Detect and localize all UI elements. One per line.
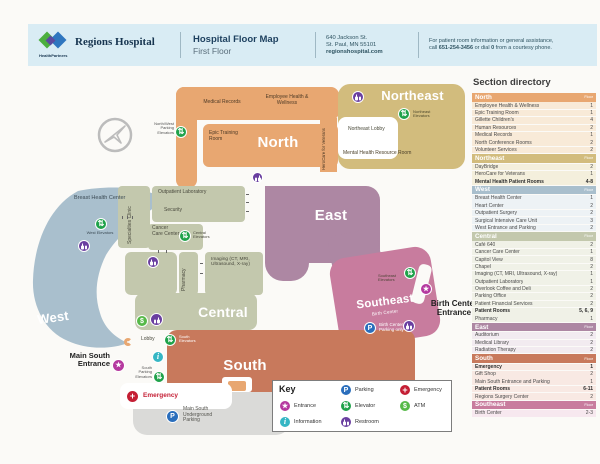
key-item-parking: PParking xyxy=(340,384,374,396)
directory-entry-name: Patient Rooms xyxy=(475,386,510,392)
elevator-icon: ⇅ xyxy=(153,371,165,383)
directory-entry-name: Epic Training Room xyxy=(475,110,519,116)
lobby-label: Lobby xyxy=(141,337,163,343)
nw-parking-elevators-label: North/West Parking Elevators xyxy=(146,122,174,135)
address-line: 640 Jackson St. xyxy=(326,35,418,42)
directory-section-header: NorthFloor xyxy=(472,93,596,102)
key-item-elevator: ⇅Elevator xyxy=(340,400,375,412)
directory-entry-name: Imaging (CT, MRI, Ultrasound, X-ray) xyxy=(475,271,557,277)
directory-row: Birth Center2-3 xyxy=(472,410,596,417)
directory-row: Patient Rooms6-11 xyxy=(472,386,596,393)
northeast-elevators-label: Northeast Elevators xyxy=(413,110,443,119)
directory-row: Gillette Children's4 xyxy=(472,117,596,124)
directory-entry-floor: 2 xyxy=(588,371,593,377)
elevator-icon: ⇅ xyxy=(404,267,416,279)
brand-logo: Regions Hospital HealthPartners xyxy=(28,24,180,66)
brand-name: Regions Hospital xyxy=(75,36,155,48)
central-region-label: Central xyxy=(188,304,258,320)
birth-center-entrance-label: Birth Center Entrance xyxy=(430,300,478,318)
directory-entry-name: Heart Center xyxy=(475,203,504,209)
directory-entry-floor: 2 xyxy=(588,347,593,353)
directory-row: Medical Library2 xyxy=(472,340,596,347)
door-tick xyxy=(246,202,249,203)
directory-entry-floor: 1 xyxy=(588,110,593,116)
directory-entry-name: Employee Health & Wellness xyxy=(475,103,539,109)
brand-subname: HealthPartners xyxy=(39,53,67,58)
elevator-icon: ⇅ xyxy=(164,334,176,346)
directory-row: Surgical Intensive Care Unit3 xyxy=(472,217,596,224)
directory-entry-floor: 2 xyxy=(588,340,593,346)
directory-entry-name: Volunteer Services xyxy=(475,147,517,153)
directory-entry-floor: 8 xyxy=(588,257,593,263)
directory-row: Patient Rooms5, 6, 9 xyxy=(472,308,596,315)
directory-section-name: North xyxy=(475,94,492,101)
directory-entry-floor: 1 xyxy=(588,279,593,285)
information-icon: i xyxy=(152,351,164,363)
directory-entry-floor: 4-8 xyxy=(584,179,593,185)
directory-entry-floor: 2 xyxy=(588,210,593,216)
directory-entry-floor: 1 xyxy=(588,316,593,322)
door-tick xyxy=(132,216,133,219)
directory-row: Pharmacy1 xyxy=(472,315,596,322)
directory-row: DayBridge2 xyxy=(472,164,596,171)
directory-section-name: Central xyxy=(475,233,497,240)
directory-floor-heading: Floor xyxy=(584,403,593,407)
directory-floor-heading: Floor xyxy=(584,95,593,99)
directory-row: Outpatient Laboratory1 xyxy=(472,278,596,285)
directory-row: Cancer Care Center1 xyxy=(472,249,596,256)
emergency-label: Emergency xyxy=(143,392,187,399)
parking-icon: P xyxy=(166,410,179,423)
directory-entry-name: Auditorium xyxy=(475,332,499,338)
directory-section-header: CentralFloor xyxy=(472,232,596,241)
restroom-icon xyxy=(150,313,163,326)
directory-entry-floor: 2-3 xyxy=(584,410,593,416)
directory-sections: NorthFloorEmployee Health & Wellness1Epi… xyxy=(472,93,596,417)
directory-section-header: WestFloor xyxy=(472,186,596,195)
directory-entry-floor: 1 xyxy=(588,249,593,255)
hospital-website: regionshospital.com xyxy=(326,49,418,56)
directory-entry-floor: 1 xyxy=(588,271,593,277)
directory-row: HeroCare for Veterans1 xyxy=(472,171,596,178)
key-item-restroom: Restroom xyxy=(340,416,379,428)
page-subtitle: First Floor xyxy=(193,46,315,56)
directory-entry-floor: 1 xyxy=(588,195,593,201)
directory-entry-floor: 2 xyxy=(588,140,593,146)
directory-entry-name: Birth Center xyxy=(475,410,502,416)
directory-entry-name: Outpatient Surgery xyxy=(475,210,517,216)
directory-entry-name: Patient Financial Services xyxy=(475,301,533,307)
outpatient-lab-label: Outpatient Laboratory xyxy=(158,190,214,196)
directory-entry-name: Emergency xyxy=(475,364,502,370)
south-parking-elevators-label: South Parking Elevators xyxy=(128,366,152,379)
restroom-icon xyxy=(403,320,415,332)
directory-entry-name: Human Resources xyxy=(475,125,516,131)
directory-entry-floor: 1 xyxy=(588,132,593,138)
directory-row: Capitol View8 xyxy=(472,256,596,263)
restroom-icon xyxy=(252,172,263,183)
door-tick xyxy=(127,216,128,219)
atm-icon: $ xyxy=(136,315,148,327)
directory-floor-heading: Floor xyxy=(584,357,593,361)
restroom-icon xyxy=(340,416,352,428)
directory-entry-name: Cancer Care Center xyxy=(475,249,520,255)
directory-row: Employee Health & Wellness1 xyxy=(472,102,596,109)
north-region-label: North xyxy=(243,134,313,151)
main-south-entrance-label: Main South Entrance xyxy=(46,352,110,369)
northeast-lobby-label: Northeast Lobby xyxy=(348,127,388,133)
key-item-emergency: +Emergency xyxy=(399,384,442,396)
restroom-icon xyxy=(78,240,90,252)
restroom-icon xyxy=(147,256,159,268)
directory-entry-floor: 1 xyxy=(588,379,593,385)
directory-entry-floor: 2 xyxy=(588,225,593,231)
pharmacy-label: Pharmacy xyxy=(182,257,188,291)
directory-entry-name: Radiation Therapy xyxy=(475,347,516,353)
directory-section-header: SoutheastFloor xyxy=(472,401,596,410)
directory-entry-name: Surgical Intensive Care Unit xyxy=(475,218,537,224)
header-bar: Regions Hospital HealthPartners Hospital… xyxy=(28,24,597,66)
emergency-icon: + xyxy=(126,390,139,403)
directory-row: Imaging (CT, MRI, Ultrasound, X-ray)1 xyxy=(472,271,596,278)
directory-entry-name: Gift Shop xyxy=(475,371,496,377)
door-tick xyxy=(166,250,167,253)
directory-entry-floor: 3 xyxy=(588,218,593,224)
directory-entry-floor: 1 xyxy=(588,103,593,109)
directory-entry-name: Breast Health Center xyxy=(475,195,522,201)
directory-row: Emergency1 xyxy=(472,364,596,371)
east-wing-shape xyxy=(265,186,309,281)
entrance-icon: ★ xyxy=(279,400,291,412)
header-title-block: Hospital Floor Map First Floor xyxy=(181,34,315,56)
elevator-icon: ⇅ xyxy=(398,108,410,120)
directory-row: Parking Office2 xyxy=(472,293,596,300)
directory-section-header: NortheastFloor xyxy=(472,154,596,163)
directory-section-name: Southeast xyxy=(475,401,505,408)
directory-row: Chapel2 xyxy=(472,264,596,271)
south-region-label: South xyxy=(205,357,285,374)
directory-row: Overlook Coffee and Deli2 xyxy=(472,286,596,293)
directory-section-name: Northeast xyxy=(475,155,504,162)
directory-entry-floor: 2 xyxy=(588,293,593,299)
breast-health-label: Breast Health Center xyxy=(74,195,126,201)
directory-entry-name: Main South Entrance and Parking xyxy=(475,379,550,385)
parking-icon: P xyxy=(364,322,376,334)
directory-entry-name: Pharmacy xyxy=(475,316,498,322)
directory-entry-floor: 5, 6, 9 xyxy=(577,308,593,314)
directory-row: Heart Center2 xyxy=(472,202,596,209)
restroom-icon xyxy=(352,91,364,103)
directory-section-name: East xyxy=(475,324,488,331)
door-tick xyxy=(158,250,159,253)
door-tick xyxy=(122,216,123,219)
door-tick xyxy=(200,273,203,274)
directory-entry-name: DayBridge xyxy=(475,164,498,170)
east-region-label: East xyxy=(300,207,362,224)
directory-entry-floor: 4 xyxy=(588,117,593,123)
hospital-floor-map-page: Regions Hospital HealthPartners Hospital… xyxy=(0,0,600,464)
directory-row: Main South Entrance and Parking1 xyxy=(472,378,596,385)
directory-row: Radiation Therapy2 xyxy=(472,347,596,354)
directory-row: Human Resources2 xyxy=(472,125,596,132)
directory-entry-name: Medical Records xyxy=(475,132,512,138)
main-south-parking-label: Main South Underground Parking xyxy=(183,407,229,424)
directory-entry-name: Café 640 xyxy=(475,242,495,248)
directory-row: Outpatient Surgery2 xyxy=(472,210,596,217)
directory-entry-floor: 2 xyxy=(588,164,593,170)
directory-floor-heading: Floor xyxy=(584,234,593,238)
southeast-elevators-label: Southeast Elevators xyxy=(378,274,404,283)
directory-entry-name: Gillette Children's xyxy=(475,117,514,123)
page-title: Hospital Floor Map xyxy=(193,34,315,45)
directory-row: Epic Training Room1 xyxy=(472,110,596,117)
directory-entry-name: Capitol View xyxy=(475,257,503,263)
assistance-line1: For patient room information or general … xyxy=(429,38,589,45)
key-title: Key xyxy=(279,384,296,394)
south-elevators-label: South Elevators xyxy=(179,335,203,344)
entrance-icon: ★ xyxy=(420,283,432,295)
directory-section-name: South xyxy=(475,355,493,362)
epic-training-label: Epic Training Room xyxy=(209,131,245,142)
entrance-icon: ★ xyxy=(112,359,125,372)
door-tick xyxy=(246,194,249,195)
directory-entry-name: Overlook Coffee and Deli xyxy=(475,286,531,292)
directory-entry-floor: 2 xyxy=(588,203,593,209)
directory-section-name: West xyxy=(475,186,490,193)
section-directory-title: Section directory xyxy=(473,77,551,88)
directory-entry-name: Patient Rooms xyxy=(475,308,510,314)
west-elevators-label: West Elevators xyxy=(86,231,114,235)
elevator-icon: ⇅ xyxy=(95,218,107,230)
directory-entry-name: Parking Office xyxy=(475,293,506,299)
directory-entry-floor: 2 xyxy=(588,394,593,400)
hospital-address: 640 Jackson St. St. Paul, MN 55101 regio… xyxy=(316,35,418,56)
central-elevators-label: Central Elevators xyxy=(193,231,215,240)
directory-entry-name: Regions Surgery Center xyxy=(475,394,529,400)
parking-icon: P xyxy=(340,384,352,396)
directory-row: Patient Financial Services2 xyxy=(472,301,596,308)
elevator-icon: ⇅ xyxy=(175,126,187,138)
directory-entry-floor: 2 xyxy=(588,286,593,292)
directory-entry-name: Outpatient Laboratory xyxy=(475,279,523,285)
directory-section-header: EastFloor xyxy=(472,323,596,332)
imaging-label: Imaging (CT, MRI, Ultrasound, X-ray) xyxy=(211,257,255,268)
directory-floor-heading: Floor xyxy=(584,325,593,329)
employee-health-label: Employee Health & Wellness xyxy=(256,95,318,106)
security-label: Security xyxy=(164,208,214,214)
address-line: St. Paul, MN 55101 xyxy=(326,42,418,49)
assistance-phone: 651-254-3456 xyxy=(439,45,473,51)
directory-entry-name: HeroCare for Veterans xyxy=(475,171,525,177)
key-item-entrance: ★Entrance xyxy=(279,400,316,412)
directory-entry-name: Chapel xyxy=(475,264,491,270)
door-tick xyxy=(200,263,203,264)
information-icon: i xyxy=(279,416,291,428)
directory-row: Café 6402 xyxy=(472,241,596,248)
emergency-icon: + xyxy=(399,384,411,396)
directory-section-header: SouthFloor xyxy=(472,354,596,363)
directory-row: Gift Shop2 xyxy=(472,371,596,378)
directory-floor-heading: Floor xyxy=(584,156,593,160)
directory-row: Mental Health Patient Rooms4-8 xyxy=(472,178,596,185)
directory-entry-floor: 1 xyxy=(588,364,593,370)
directory-row: Volunteer Services2 xyxy=(472,147,596,154)
directory-row: Auditorium2 xyxy=(472,332,596,339)
directory-entry-floor: 2 xyxy=(588,264,593,270)
assistance-note: For patient room information or general … xyxy=(419,38,597,52)
directory-entry-floor: 2 xyxy=(588,125,593,131)
assistance-line2: call 651-254-3456 or dial 0 from a court… xyxy=(429,45,589,52)
directory-entry-floor: 2 xyxy=(588,332,593,338)
directory-entry-floor: 2 xyxy=(588,301,593,307)
directory-entry-floor: 2 xyxy=(588,242,593,248)
directory-entry-floor: 6-11 xyxy=(581,386,593,392)
lobby-arc-icon xyxy=(124,338,132,346)
directory-row: Regions Surgery Center2 xyxy=(472,393,596,400)
directory-row: North Conference Rooms2 xyxy=(472,139,596,146)
northeast-region-label: Northeast xyxy=(365,88,460,103)
medical-records-label: Medical Records xyxy=(184,100,260,106)
directory-row: Medical Records1 xyxy=(472,132,596,139)
elevator-icon: ⇅ xyxy=(179,230,191,242)
directory-entry-name: North Conference Rooms xyxy=(475,140,532,146)
directory-entry-name: Medical Library xyxy=(475,340,509,346)
directory-row: Breast Health Center1 xyxy=(472,195,596,202)
herocare-label: HeroCare for Veterans xyxy=(322,124,327,170)
door-tick xyxy=(246,211,249,212)
cancer-care-label: Cancer Care Center xyxy=(152,226,180,237)
directory-entry-floor: 2 xyxy=(588,147,593,153)
directory-entry-name: West Entrance and Parking xyxy=(475,225,536,231)
key-item-information: iInformation xyxy=(279,416,322,428)
mental-health-resource-label: Mental Health Resource Room xyxy=(343,151,431,157)
compass-icon xyxy=(96,116,136,156)
elevator-icon: ⇅ xyxy=(340,400,352,412)
directory-floor-heading: Floor xyxy=(584,188,593,192)
directory-row: West Entrance and Parking2 xyxy=(472,225,596,232)
atm-icon: $ xyxy=(399,400,411,412)
directory-entry-floor: 1 xyxy=(588,171,593,177)
directory-entry-name: Mental Health Patient Rooms xyxy=(475,179,544,185)
key-item-atm: $ATM xyxy=(399,400,425,412)
